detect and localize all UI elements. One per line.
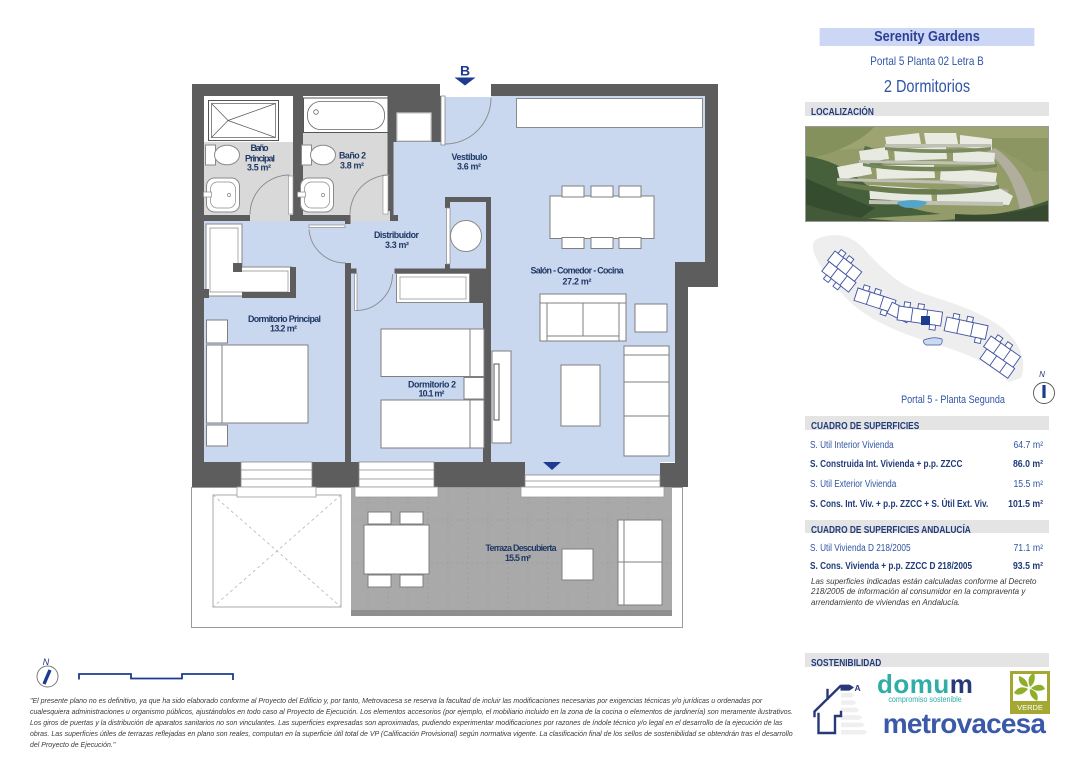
svg-text:A: A xyxy=(855,683,861,693)
svg-text:VERDE: VERDE xyxy=(1017,703,1043,712)
svg-text:N: N xyxy=(1039,370,1045,379)
svg-text:N: N xyxy=(43,657,50,667)
